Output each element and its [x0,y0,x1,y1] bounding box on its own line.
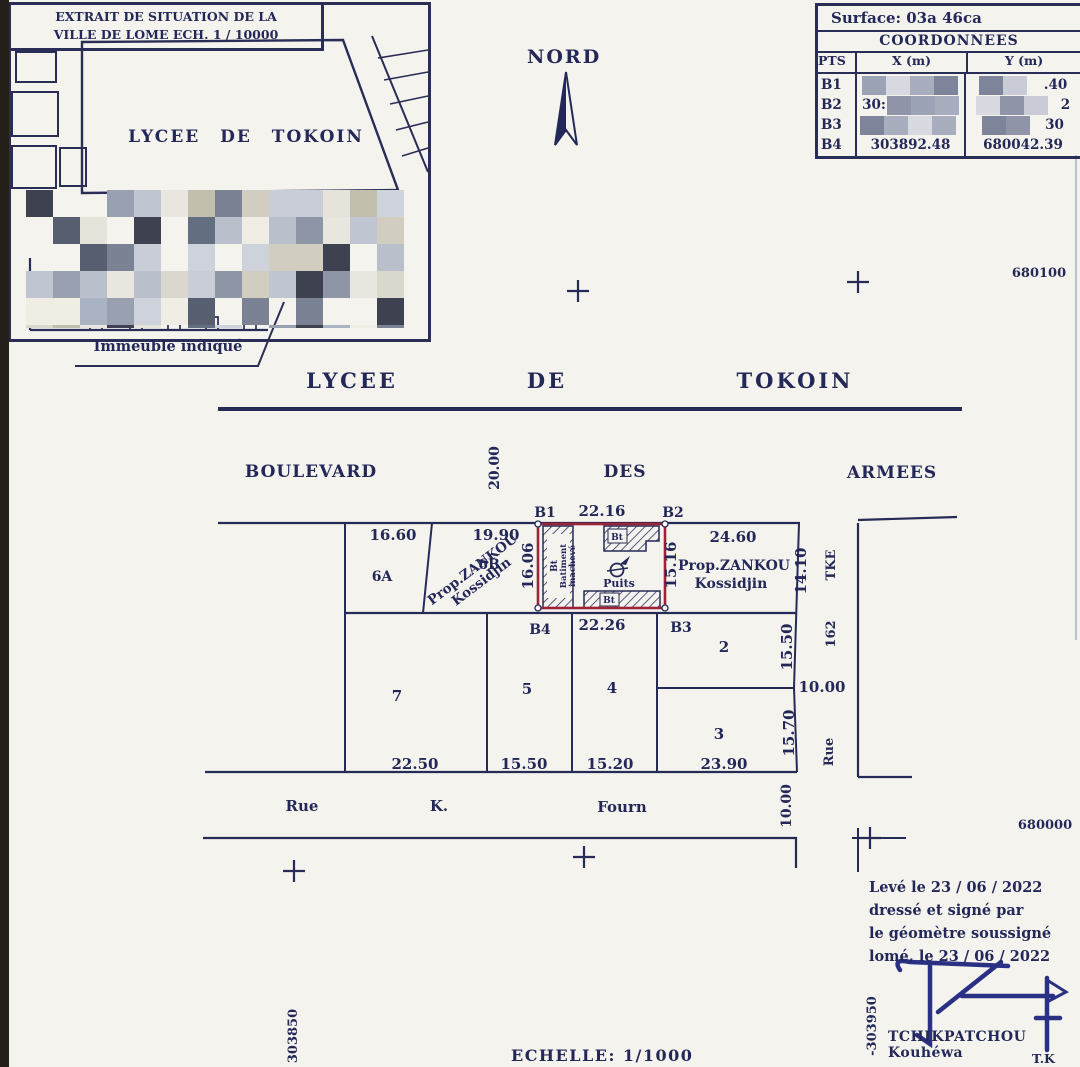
street-lycee-w3: TOKOIN [737,368,854,393]
parcel-4-label: 4 [607,679,617,697]
redacted-value [976,96,1060,115]
blvd-width-dim: 20.00 [487,446,503,490]
table-row: B3 30 [818,115,1080,135]
corner-marker-b4 [535,605,541,611]
building-abbr-bottom: Bt [603,596,616,606]
redacted-value [887,96,959,115]
well-icon [607,556,630,577]
pt-cell: B3 [818,117,855,133]
parcel-6a-label: 6A [372,569,394,585]
scale-label: ECHELLE: 1/1000 [506,1046,698,1067]
surface-label: Surface: 03a 46ca [818,6,1080,32]
inset-title-line1: EXTRAIT DE SITUATION DE LA [11,8,321,26]
pt-cell: B1 [818,77,855,93]
plot-dim-bottom: 22.26 [579,616,626,634]
north-arrow-icon [555,72,577,145]
rue-162-suffix: TKE [824,549,839,580]
dim-right-top: 24.60 [710,528,757,546]
well-label: Puits [603,577,635,590]
redacted-value [982,116,1044,135]
corner-b3-label: B3 [670,620,692,636]
dim-p3-bottom: 23.90 [701,755,748,773]
building-abbr-top: Bt [611,533,624,543]
survey-plan-page: LYCEE DE TOKOIN BOULEVARD DES ARMEES 20.… [0,0,1080,1067]
plot-dim-left: 16.06 [519,543,537,590]
corner-bracket [852,828,906,872]
dim-p5: 15.50 [501,755,548,773]
x-cell: 30: [862,97,886,113]
grid-x-right: -303950 [865,996,880,1056]
rue-162-name: Rue [822,738,837,767]
coordinates-table: Surface: 03a 46ca COORDONNEES PTS X (m) … [815,3,1080,159]
building-bottom [584,591,660,608]
rue-kf-width: 10.00 [779,784,795,828]
street-lycee-w2: DE [527,368,567,393]
rue-kf-w2: K. [430,797,448,815]
north-label: NORD [527,46,601,68]
rue-kf-w3: Fourn [597,798,647,816]
corner-marker-b3 [662,605,668,611]
grid-y-top: 680100 [1012,266,1066,281]
header-y: Y (m) [968,53,1080,72]
inset-title-box: EXTRAIT DE SITUATION DE LA VILLE DE LOME… [8,2,324,51]
header-x: X (m) [857,53,968,72]
grid-x-left: 303850 [286,1009,301,1063]
redacted-value [860,116,962,135]
dim-right-side: 14.10 [792,548,810,595]
y-cell: .40 [1044,77,1068,93]
header-pts: PTS [818,53,857,72]
plot-dim-right: 15.16 [662,542,680,589]
rue-kf-w1: Rue [286,797,319,815]
redacted-value [862,76,960,95]
owner-label-west: Prop.ZANKOU Kossidjin [425,531,530,621]
cert-line4: lomé, le 23 / 06 / 2022 [869,945,1080,968]
corner-marker-b2 [662,521,668,527]
street-blvd-w1: BOULEVARD [245,462,377,482]
pt-cell: B2 [818,97,855,113]
table-row: B4 303892.48 680042.39 [818,135,1080,155]
table-header-row: PTS X (m) Y (m) [818,53,1080,74]
inset-caption: Immeuble indiqué [72,338,264,355]
dim-p7: 22.50 [392,755,439,773]
table-body: B1 .40 B2 30: 2 B3 30 B4 303892.48 68004… [818,74,1080,156]
dim-p3-side: 15.70 [780,710,798,757]
redacted-value [979,76,1043,95]
owner-line1-east: Prop.ZANKOU [678,558,790,574]
rue-south-line [203,838,796,868]
pt-cell: B4 [818,137,855,153]
certification-block: Levé le 23 / 06 / 2022 dressé et signé p… [869,876,1080,968]
street-lycee-w1: LYCEE [306,368,398,393]
cert-line3: le géomètre soussigné [869,922,1080,945]
owner-line2-east: Kossidjin [695,576,768,592]
inset-lycee-label: LYCEE DE TOKOIN [106,127,386,147]
dim-6a: 16.60 [370,526,417,544]
x-cell: 303892.48 [855,137,966,153]
table-row: B2 30: 2 [818,95,1080,115]
y-cell: 2 [1061,97,1070,113]
parcel-3-label: 3 [714,725,724,743]
plot-dim-top: 22.16 [579,502,626,520]
dim-p4: 15.20 [587,755,634,773]
scan-edge-border [0,0,9,1067]
building-note2: inachevé [567,544,578,587]
cert-line2: dressé et signé par [869,899,1080,922]
table-row: B1 .40 [818,75,1080,95]
corner-marker-b1 [535,521,541,527]
dim-p2: 15.50 [778,624,796,671]
parcel-2-label: 2 [719,638,729,656]
corner-b4-label: B4 [529,622,551,638]
east-block-outline [858,517,957,777]
parcel-5-label: 5 [522,680,532,698]
grid-y-bottom: 680000 [1018,818,1072,833]
y-cell: 30 [1045,117,1064,133]
inset-title-line2: VILLE DE LOME ECH. 1 / 10000 [11,26,321,44]
cert-line1: Levé le 23 / 06 / 2022 [869,876,1080,899]
corner-b2-label: B2 [662,505,684,521]
rue-162-number: 162 [824,620,839,647]
rue-162-width: 10.00 [799,678,846,696]
corner-b1-label: B1 [534,505,556,521]
situation-inset-map: EXTRAIT DE SITUATION DE LA VILLE DE LOME… [8,2,431,342]
street-blvd-w3: ARMEES [846,463,937,483]
parcel-7-label: 7 [392,687,402,705]
surveyor-initials: T.K [1032,1051,1055,1066]
y-cell: 680042.39 [966,137,1080,153]
coordinates-title: COORDONNEES [818,32,1080,53]
street-blvd-w2: DES [604,462,647,482]
